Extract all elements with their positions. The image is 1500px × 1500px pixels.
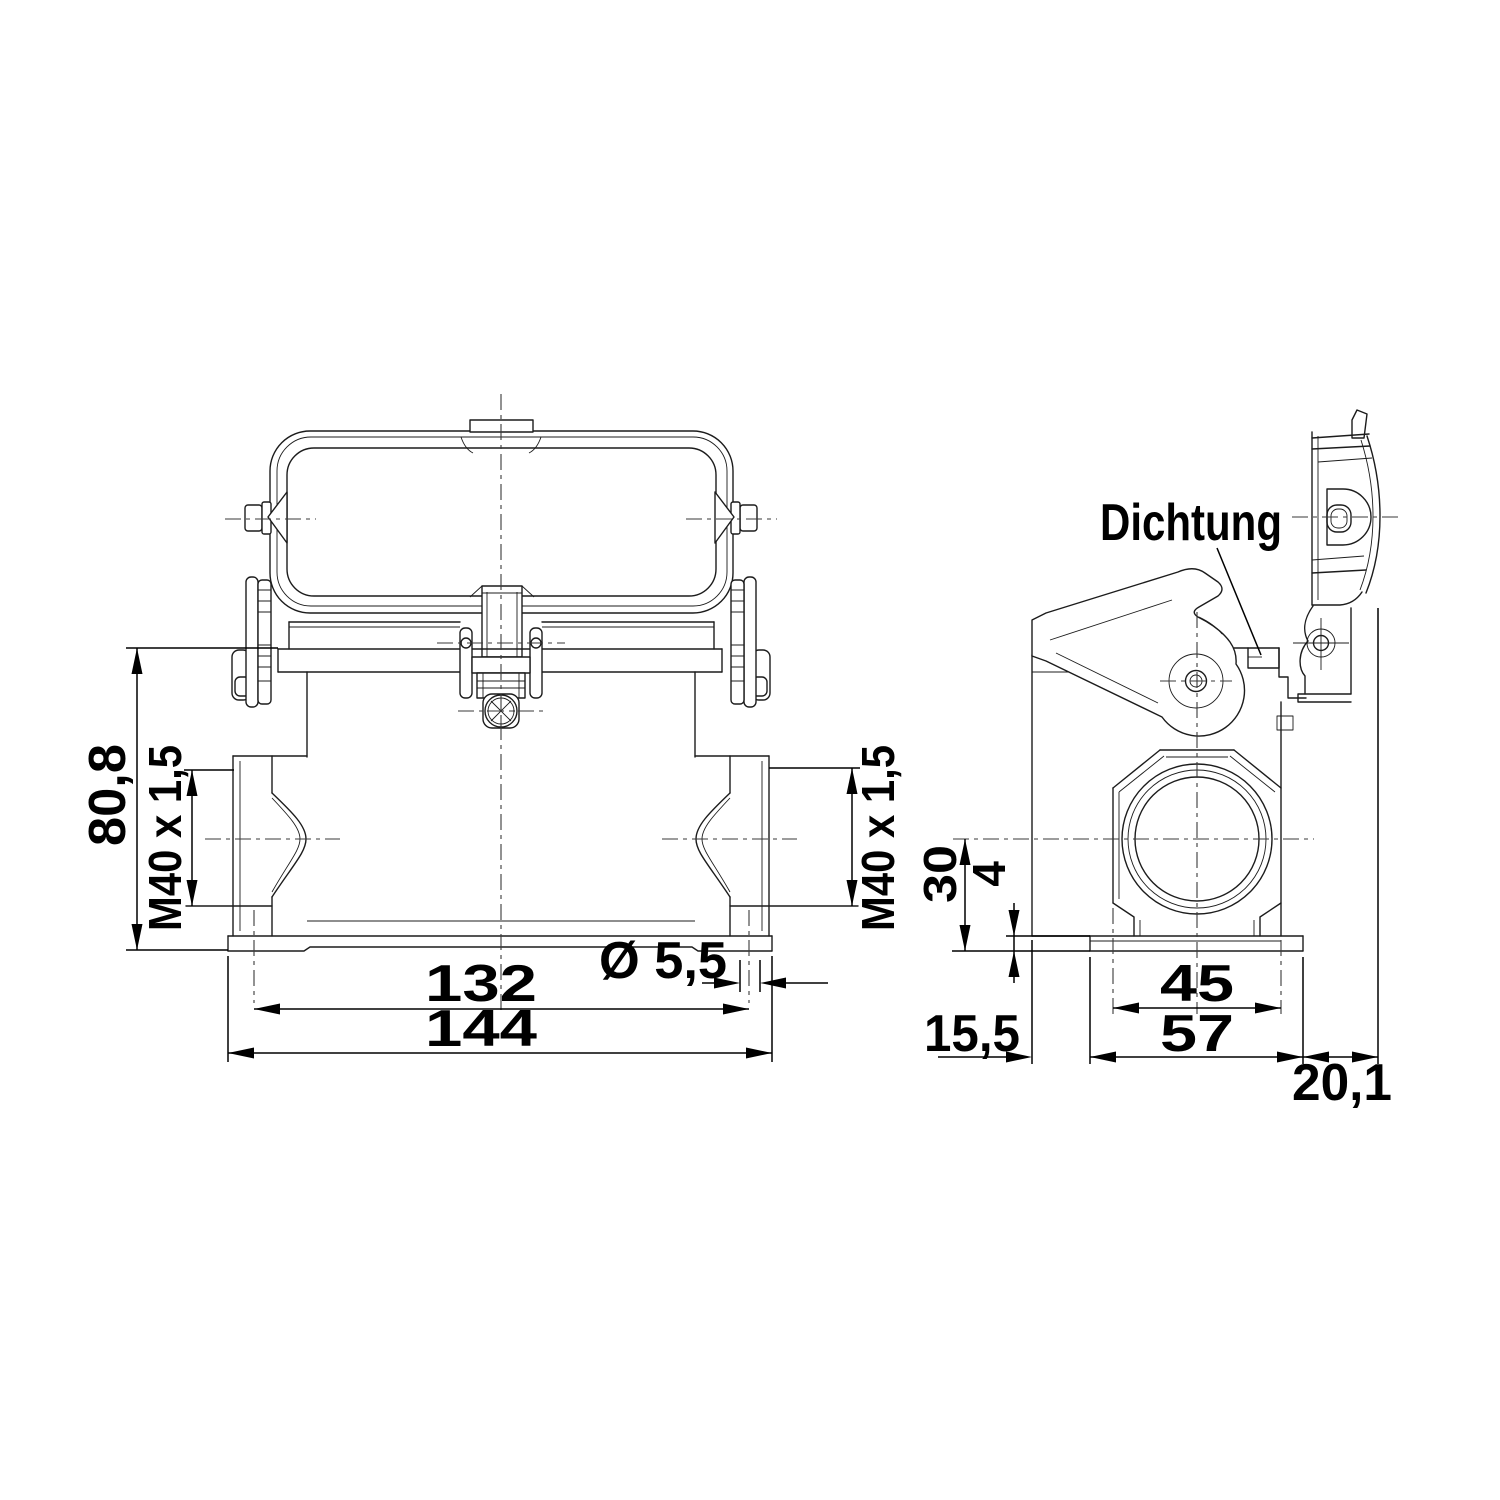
dim-label-thread-left: M40 x 1,5: [139, 745, 191, 931]
dim-label-overall-width: 144: [425, 1000, 537, 1058]
seal-label: Dichtung: [1100, 494, 1282, 552]
drawing-page: 80,8 M40 x 1,5 M40 x 1,5: [0, 0, 1500, 1500]
dim-label-thread-right: M40 x 1,5: [852, 745, 904, 931]
dim-label-overall-height: 80,8: [79, 744, 137, 846]
dim-label-cover-projection: 20,1: [1292, 1054, 1392, 1112]
dim-label-hole-diameter: Ø 5,5: [599, 932, 727, 990]
dim-label-entry-center-height: 30: [914, 845, 966, 903]
canvas-background: [0, 0, 1500, 1500]
technical-drawing: 80,8 M40 x 1,5 M40 x 1,5: [0, 0, 1500, 1500]
dim-label-front-offset: 15,5: [924, 1005, 1020, 1063]
dim-label-base-depth: 57: [1160, 1005, 1234, 1063]
dim-label-base-plate-thickness: 4: [963, 861, 1015, 887]
